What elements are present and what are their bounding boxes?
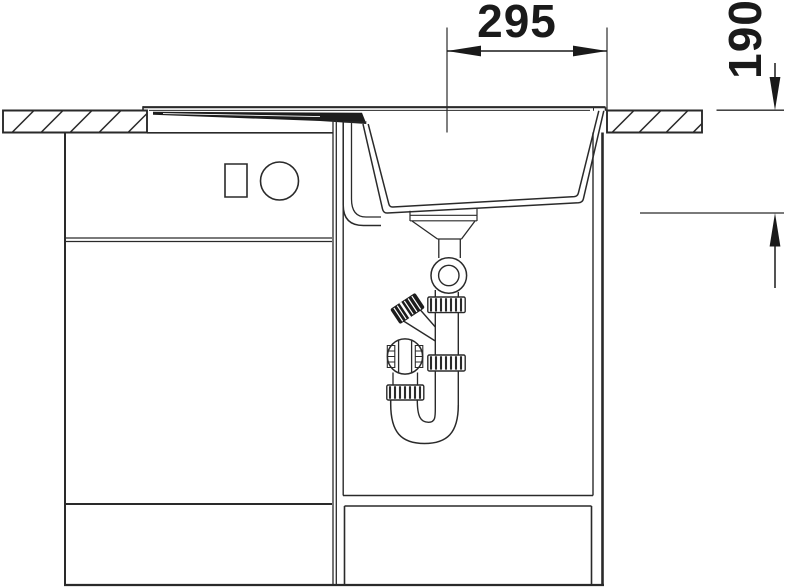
cabinet-carcass — [64, 120, 604, 585]
pipe-nut-lower-ribs — [431, 356, 461, 369]
bracket-outer-profile — [343, 122, 381, 226]
funnel-neck — [439, 239, 461, 258]
countertop-right-outline — [607, 111, 702, 133]
countertop-left-hatching — [12, 111, 150, 133]
pipe-nut-upper-ribs — [431, 298, 461, 311]
sink-basin — [363, 111, 604, 213]
dim295-arrow-right — [573, 46, 607, 57]
drain-funnel — [412, 221, 475, 258]
dim295-arrow-left — [447, 46, 481, 57]
countertop-left-section — [3, 111, 150, 133]
trap-outlet-nut — [387, 385, 424, 400]
drainboard-section — [153, 112, 367, 124]
dim190-arrow-down — [770, 77, 781, 110]
outlet-loop-pipe-lines — [399, 341, 412, 374]
sink-rim — [143, 106, 606, 111]
trap-outlet-nut-ribs — [390, 386, 420, 399]
dimension-label-295: 295 — [450, 0, 584, 46]
right-drawer-front-outline — [345, 506, 592, 584]
control-knob — [261, 162, 299, 200]
control-display-window — [225, 164, 247, 197]
trap-u-bend — [391, 400, 459, 444]
union-ring-outer — [431, 258, 467, 294]
pipe-nut-upper — [428, 297, 465, 313]
union-ring-inner — [439, 265, 459, 285]
countertop-left-outline — [3, 111, 147, 133]
drawing-svg — [0, 0, 800, 587]
branch-cap — [390, 293, 425, 325]
countertop-right-section — [607, 111, 715, 133]
dimension-label-190: 190 — [720, 0, 770, 106]
basin-mounting-bracket — [343, 122, 381, 226]
trap-union-ring — [431, 258, 467, 294]
dim190-arrow-up — [770, 213, 781, 247]
basin-inner-wall — [368, 111, 599, 207]
technical-drawing-canvas: 295 190 — [0, 0, 800, 587]
u-bend-inner — [417, 400, 435, 422]
pipe-nut-lower — [428, 355, 465, 371]
trap-outlet-loop — [387, 339, 423, 385]
countertop-right-hatching — [612, 111, 715, 133]
funnel-sides — [412, 221, 475, 239]
dishwasher-branch — [390, 293, 435, 341]
